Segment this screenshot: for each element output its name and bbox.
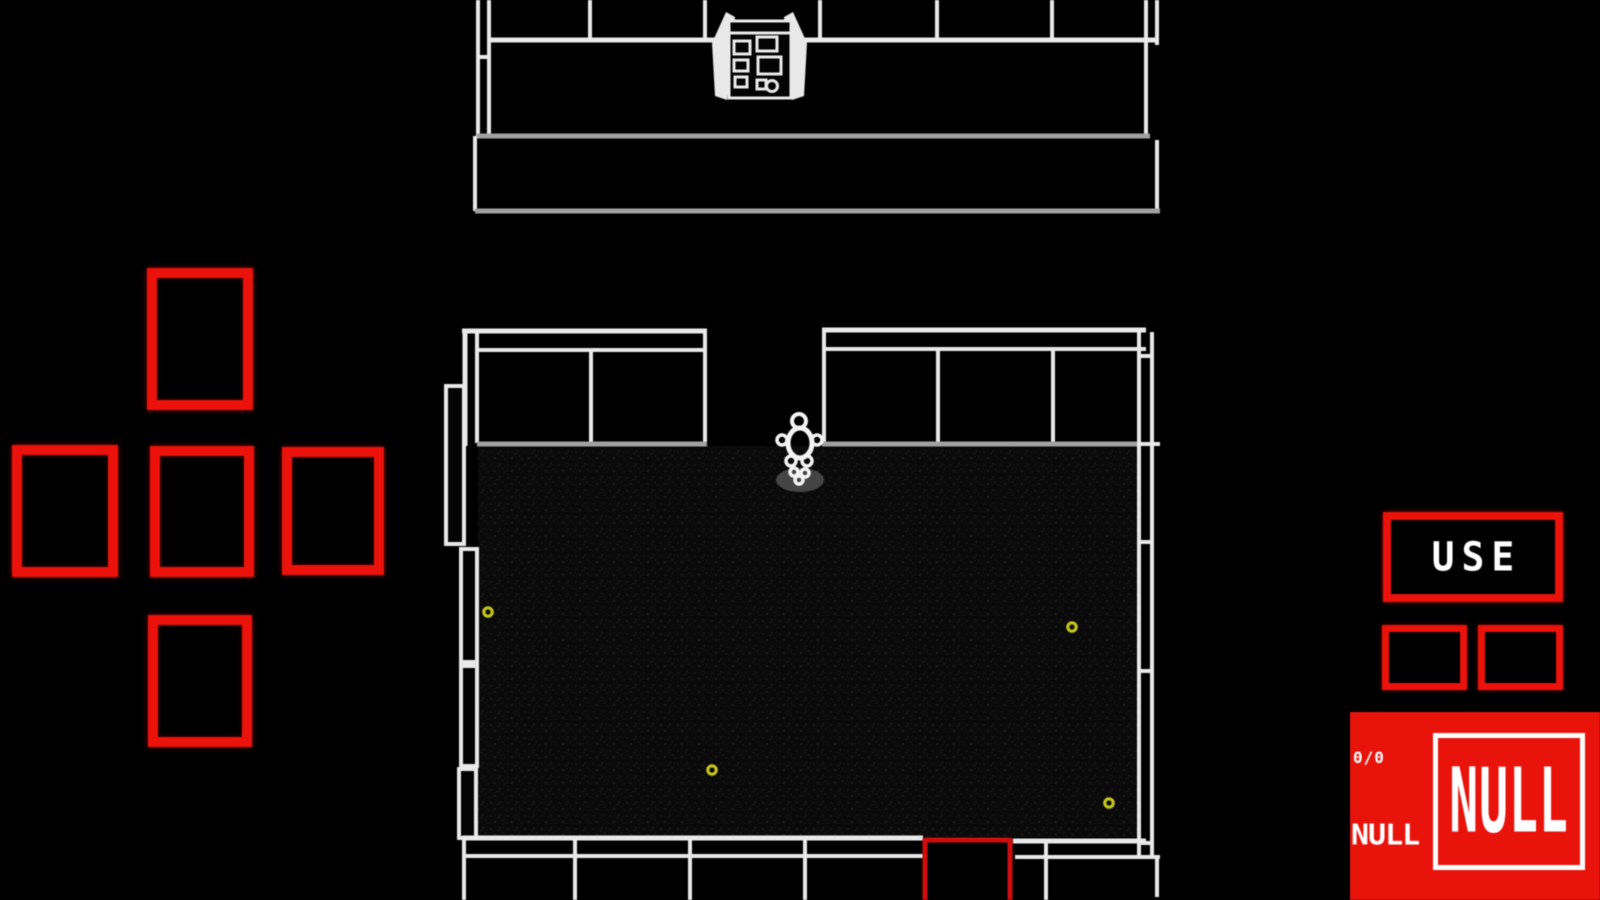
dpad-up-button[interactable]	[147, 268, 253, 410]
inventory-slot-1[interactable]	[1382, 625, 1467, 690]
ammo-counter: 0/0	[1353, 748, 1385, 767]
dpad-right-button[interactable]	[282, 447, 384, 575]
hud-layer: USE 0/0 NULL NULL	[0, 0, 1600, 900]
dpad-left-button[interactable]	[12, 445, 118, 577]
dpad-down-button[interactable]	[148, 615, 252, 747]
game-viewport: USE 0/0 NULL NULL	[0, 0, 1600, 900]
weapon-panel[interactable]: 0/0 NULL NULL	[1350, 712, 1600, 900]
weapon-name-label: NULL	[1351, 819, 1419, 852]
weapon-slot-box: NULL	[1433, 733, 1585, 870]
weapon-slot-label: NULL	[1449, 750, 1569, 854]
use-button-label: USE	[1432, 534, 1522, 580]
dpad-center-button[interactable]	[150, 446, 254, 577]
use-button[interactable]: USE	[1383, 512, 1563, 602]
inventory-slot-2[interactable]	[1478, 625, 1563, 690]
